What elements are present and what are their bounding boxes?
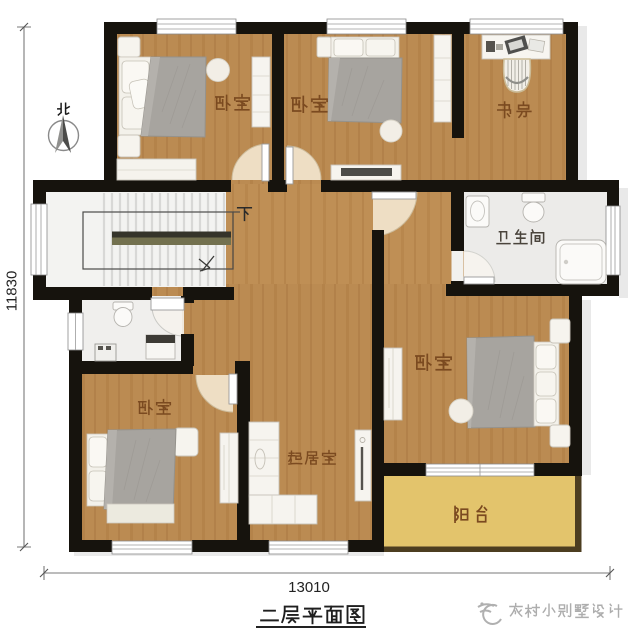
svg-text:13010: 13010	[288, 579, 330, 596]
svg-text:11830: 11830	[4, 271, 21, 312]
